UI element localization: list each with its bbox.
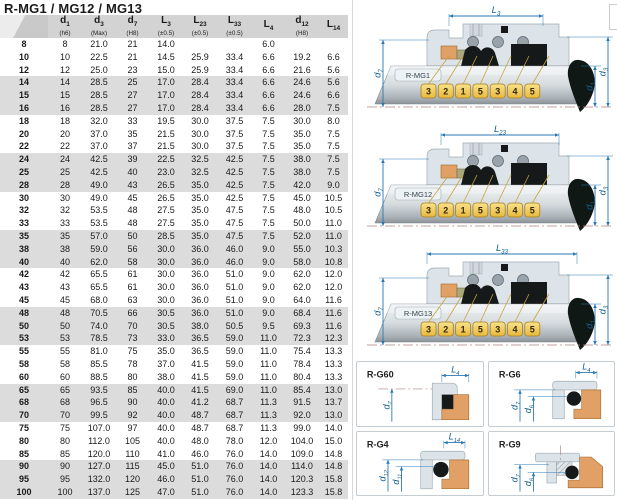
cell: 48 <box>116 204 149 217</box>
table-row: 606088.58038.041.559.011.080.413.3 <box>0 371 348 384</box>
cell: 11.0 <box>252 371 285 384</box>
cell: 42.5 <box>82 153 116 166</box>
table-row: 161628.52717.028.433.46.628.07.5 <box>0 102 348 115</box>
cell: 12.3 <box>319 332 348 345</box>
callout-number: 4 <box>512 87 517 97</box>
cell: 7.5 <box>319 102 348 115</box>
cell: 107.0 <box>82 422 116 435</box>
cell: 35.0 <box>183 230 217 243</box>
table-row: 424265.56130.036.051.09.062.012.0 <box>0 268 348 281</box>
cell: 78.5 <box>82 332 116 345</box>
cell: 22.5 <box>82 51 116 64</box>
cell: 35.0 <box>285 128 319 141</box>
cell: 47.5 <box>217 230 252 243</box>
page-frame-notch <box>609 4 617 30</box>
cell: 68.0 <box>82 294 116 307</box>
row-label: 32 <box>0 204 48 217</box>
cell: 38.0 <box>149 371 183 384</box>
cell: 45 <box>116 192 149 205</box>
row-label: 22 <box>0 140 48 153</box>
cell: 26.5 <box>149 179 183 192</box>
cell: 28.5 <box>82 76 116 89</box>
cell: 15.8 <box>319 486 348 499</box>
cell: 7.5 <box>252 115 285 128</box>
row-label: 12 <box>0 64 48 77</box>
cell: 35.0 <box>183 192 217 205</box>
table-row: 333353.54827.535.047.57.550.011.0 <box>0 217 348 230</box>
cell: 120.0 <box>82 448 116 461</box>
cell: 32.5 <box>183 166 217 179</box>
cell: 28.4 <box>183 89 217 102</box>
row-label: 60 <box>0 371 48 384</box>
table-row: 282849.04326.535.042.57.542.09.0 <box>0 179 348 192</box>
cell: 50 <box>116 230 149 243</box>
cell: 33.4 <box>217 76 252 89</box>
row-label: 90 <box>0 460 48 473</box>
cell: 49.0 <box>82 179 116 192</box>
cell: 50 <box>48 320 82 333</box>
cell: 32 <box>48 204 82 217</box>
cell: 48 <box>116 217 149 230</box>
cell: 43 <box>48 281 82 294</box>
cell: 17.0 <box>149 76 183 89</box>
cell: 65.5 <box>82 281 116 294</box>
cell: 45.0 <box>285 192 319 205</box>
cell: 88.5 <box>82 371 116 384</box>
gland-panel-r-g9: R-G9 d7 d6 <box>488 431 616 497</box>
cell: 14.0 <box>252 473 285 486</box>
panel-label: R-G4 <box>367 439 390 449</box>
cell: 39 <box>116 153 149 166</box>
cell: 30.0 <box>285 115 319 128</box>
cell: 97 <box>116 422 149 435</box>
o-ring <box>566 391 580 405</box>
row-label: 14 <box>0 76 48 89</box>
callout-number: 3 <box>426 325 431 335</box>
cell: 7.5 <box>252 179 285 192</box>
cell: 46.0 <box>217 256 252 269</box>
callout-number: 3 <box>495 325 500 335</box>
cell: 58 <box>116 256 149 269</box>
cell: 46.0 <box>183 448 217 461</box>
cell: 132.0 <box>82 473 116 486</box>
cell: 12.0 <box>252 435 285 448</box>
cell: 21.6 <box>285 64 319 77</box>
cell: 123.3 <box>285 486 319 499</box>
cell: 35.0 <box>149 345 183 358</box>
cell: 30.0 <box>183 140 217 153</box>
row-label: 95 <box>0 473 48 486</box>
cell: 6.6 <box>252 102 285 115</box>
cell: 81.0 <box>82 345 116 358</box>
cell: 38 <box>48 243 82 256</box>
col-header <box>0 15 48 38</box>
catalog-page: R-MG1 / MG12 / MG13 d1(h6)d3(Max)d7(H8)L… <box>0 0 617 500</box>
cell: 62.0 <box>285 281 319 294</box>
cell: 35.0 <box>285 140 319 153</box>
cell: 30.0 <box>149 281 183 294</box>
cell: 20 <box>48 128 82 141</box>
cell: 14.0 <box>252 486 285 499</box>
callout-number: 5 <box>530 325 535 335</box>
cell: 6.0 <box>252 38 285 51</box>
cell: 40.0 <box>149 422 183 435</box>
cell: 7.5 <box>252 217 285 230</box>
cell <box>183 38 217 51</box>
cell: 9.0 <box>252 307 285 320</box>
cell: 59.0 <box>217 371 252 384</box>
cell: 91.5 <box>285 396 319 409</box>
cell: 59.0 <box>217 332 252 345</box>
cell: 17.0 <box>149 89 183 102</box>
cell: 35 <box>48 230 82 243</box>
callout-number: 1 <box>461 325 466 335</box>
row-label: 35 <box>0 230 48 243</box>
cell: 42.5 <box>217 153 252 166</box>
dimension-table: d1(h6)d3(Max)d7(H8)L3(±0.5)L23(±0.5)L33(… <box>0 15 348 499</box>
cell: 80 <box>48 435 82 448</box>
dimension-label: d7 <box>373 69 386 78</box>
callout-number: 3 <box>426 206 431 216</box>
cell: 41.5 <box>183 371 217 384</box>
cell: 80 <box>116 371 149 384</box>
cell: 66 <box>116 307 149 320</box>
cell: 7.5 <box>319 140 348 153</box>
cell: 105 <box>116 435 149 448</box>
dimension-label: d7 <box>373 307 386 316</box>
cell: 11.0 <box>252 345 285 358</box>
cell: 7.5 <box>252 230 285 243</box>
dimension-label: L23 <box>494 124 507 137</box>
o-ring <box>433 461 448 476</box>
cell: 13.3 <box>319 371 348 384</box>
callout-number: 4 <box>512 206 517 216</box>
header-row: d1(h6)d3(Max)d7(H8)L3(±0.5)L23(±0.5)L33(… <box>0 15 348 38</box>
cell: 11.0 <box>319 230 348 243</box>
cell: 35.0 <box>183 217 217 230</box>
gland-section <box>552 381 596 390</box>
cell: 100 <box>48 486 82 499</box>
spring <box>493 156 504 167</box>
cell: 19.5 <box>149 115 183 128</box>
cell: 46.0 <box>217 243 252 256</box>
cell: 14.8 <box>319 460 348 473</box>
cell: 28.4 <box>183 102 217 115</box>
cell: 69.3 <box>285 320 319 333</box>
col-header: d12(H8) <box>285 15 319 38</box>
table-row: 656593.58540.041.569.011.085.413.0 <box>0 384 348 397</box>
cell: 35 <box>116 128 149 141</box>
cell: 10.3 <box>319 243 348 256</box>
cell: 10.5 <box>319 204 348 217</box>
cell: 68.7 <box>217 422 252 435</box>
cell: 30.0 <box>149 294 183 307</box>
cell: 23.0 <box>149 166 183 179</box>
table-row: 121225.02315.025.933.46.621.65.6 <box>0 64 348 77</box>
callout-number: 3 <box>495 206 500 216</box>
row-label: 16 <box>0 102 48 115</box>
cell: 7.5 <box>252 128 285 141</box>
row-label: 25 <box>0 166 48 179</box>
cell: 76.0 <box>217 448 252 461</box>
spring <box>468 156 479 167</box>
cell: 59.0 <box>217 345 252 358</box>
cell: 70.5 <box>82 307 116 320</box>
callout-number: 1 <box>461 87 466 97</box>
panel-label: R-G6 <box>498 369 520 379</box>
cell: 14.0 <box>252 448 285 461</box>
col-header: L3(±0.5) <box>149 15 183 38</box>
table-row: 242442.53922.532.542.57.538.07.5 <box>0 153 348 166</box>
spring <box>468 275 479 286</box>
cell: 11.0 <box>252 384 285 397</box>
cell: 17.0 <box>149 102 183 115</box>
callout-number: 2 <box>443 325 448 335</box>
cell: 25 <box>116 76 149 89</box>
col-header: L33(±0.5) <box>217 15 252 38</box>
orange-seal-face <box>441 284 457 297</box>
set-screw <box>501 264 508 271</box>
col-header: d7(H8) <box>116 15 149 38</box>
callout-number: 3 <box>495 87 500 97</box>
cell: 90 <box>116 396 149 409</box>
cell: 7.5 <box>252 140 285 153</box>
cell: 9.0 <box>252 256 285 269</box>
cell: 35.0 <box>183 204 217 217</box>
cell: 68.7 <box>217 396 252 409</box>
cell: 85.5 <box>82 358 116 371</box>
row-label: 45 <box>0 294 48 307</box>
set-screw <box>501 26 508 33</box>
gland-section <box>535 453 579 462</box>
cell: 72.3 <box>285 332 319 345</box>
table-row: 202037.03521.530.037.57.535.07.5 <box>0 128 348 141</box>
cell: 53.5 <box>82 217 116 230</box>
gland-panel-r-g60: R-G60 L4 d7 <box>356 361 484 427</box>
cell: 22.5 <box>149 153 183 166</box>
cell: 40.0 <box>149 396 183 409</box>
row-label: 42 <box>0 268 48 281</box>
cell: 51.0 <box>217 307 252 320</box>
cell: 48.0 <box>183 435 217 448</box>
diagram-label: R-MG1 <box>406 71 430 80</box>
cell: 24.6 <box>285 76 319 89</box>
cell: 38.0 <box>285 166 319 179</box>
table-row: 8080112.010540.048.078.012.0104.015.0 <box>0 435 348 448</box>
row-label: 28 <box>0 179 48 192</box>
cell: 6.6 <box>252 89 285 102</box>
cell: 28.5 <box>82 89 116 102</box>
black-seal <box>442 395 454 409</box>
cell: 7.5 <box>252 204 285 217</box>
cell: 28.5 <box>82 102 116 115</box>
cell: 75.4 <box>285 345 319 358</box>
table-row: 686896.59040.041.268.711.391.513.7 <box>0 396 348 409</box>
cell: 51.0 <box>183 460 217 473</box>
callout-number: 1 <box>461 206 466 216</box>
table-row: 9595132.012046.051.076.014.0120.315.8 <box>0 473 348 486</box>
row-label: 15 <box>0 89 48 102</box>
callout-number: 5 <box>478 325 483 335</box>
col-header: d3(Max) <box>82 15 116 38</box>
cell: 30.0 <box>149 268 183 281</box>
table-row: 585885.57837.041.559.011.078.413.3 <box>0 358 348 371</box>
panel-label: R-G9 <box>498 439 520 449</box>
cell: 23 <box>116 64 149 77</box>
cell: 70 <box>48 409 82 422</box>
cell: 21.0 <box>82 38 116 51</box>
row-label: 40 <box>0 256 48 269</box>
cell: 63 <box>116 294 149 307</box>
cell: 36.0 <box>183 268 217 281</box>
row-label: 8 <box>0 38 48 51</box>
row-label: 70 <box>0 409 48 422</box>
cell: 11.3 <box>252 409 285 422</box>
callout-number: 4 <box>512 325 517 335</box>
cell: 112.0 <box>82 435 116 448</box>
row-label: 85 <box>0 448 48 461</box>
cell: 48.0 <box>285 204 319 217</box>
cell: 24 <box>48 153 82 166</box>
cell: 30.0 <box>149 243 183 256</box>
table-row: 434365.56130.036.051.09.062.012.0 <box>0 281 348 294</box>
black-seat <box>511 44 547 66</box>
table-row: 100100137.012547.051.076.014.0123.315.8 <box>0 486 348 499</box>
table-row: 454568.06330.036.051.09.064.011.6 <box>0 294 348 307</box>
o-ring <box>565 465 578 478</box>
cell: 40 <box>116 166 149 179</box>
cell: 9.0 <box>252 294 285 307</box>
cell: 58 <box>48 358 82 371</box>
cell: 14.5 <box>149 51 183 64</box>
row-label: 65 <box>0 384 48 397</box>
table-row: 151528.52717.028.433.46.624.66.6 <box>0 89 348 102</box>
table-row: 7575107.09740.048.768.711.399.014.0 <box>0 422 348 435</box>
cell: 69.0 <box>217 384 252 397</box>
cell: 90 <box>48 460 82 473</box>
row-label: 75 <box>0 422 48 435</box>
cell: 74.0 <box>82 320 116 333</box>
cell: 37 <box>116 140 149 153</box>
cell: 40 <box>48 256 82 269</box>
set-screw <box>501 145 508 152</box>
cell: 52.0 <box>285 230 319 243</box>
cell: 21 <box>116 38 149 51</box>
table-row: 8821.02114.06.0 <box>0 38 348 51</box>
seal-diagram-r-mg12: R-MG12 3 2 1 5 3 4 5L23d7d1d3 <box>353 123 617 241</box>
callout-number: 2 <box>443 206 448 216</box>
table-row: 303049.04526.535.042.57.545.010.5 <box>0 192 348 205</box>
cell: 25.0 <box>82 64 116 77</box>
seal-diagram-r-mg1: R-MG1 3 2 1 5 3 4 5L3d7d1d3 <box>353 4 617 122</box>
cell: 11.6 <box>319 320 348 333</box>
cell: 11.3 <box>252 422 285 435</box>
cell: 80.4 <box>285 371 319 384</box>
cell: 70 <box>116 320 149 333</box>
cell: 28 <box>48 179 82 192</box>
cell: 7.5 <box>319 166 348 179</box>
col-header: d1(h6) <box>48 15 82 38</box>
dimension-label: L3 <box>492 5 501 18</box>
cell: 13.3 <box>319 345 348 358</box>
cell <box>285 38 319 51</box>
cell: 51.0 <box>183 473 217 486</box>
cell: 114.0 <box>285 460 319 473</box>
cell: 27 <box>116 89 149 102</box>
seal-diagram-r-mg13: R-MG13 3 2 1 5 3 4 5L33d7d1d3 <box>353 242 617 360</box>
cell: 47.5 <box>217 217 252 230</box>
spring <box>468 37 479 48</box>
cell: 16 <box>48 102 82 115</box>
cell: 125 <box>116 486 149 499</box>
callout-number: 5 <box>478 87 483 97</box>
cell: 9.0 <box>252 268 285 281</box>
table-row: 9090127.011545.051.076.014.0114.014.8 <box>0 460 348 473</box>
table-row: 8585120.011041.046.076.014.0109.014.8 <box>0 448 348 461</box>
cell: 18 <box>48 115 82 128</box>
table-row: 101022.52114.525.933.46.619.26.6 <box>0 51 348 64</box>
row-label: 58 <box>0 358 48 371</box>
cell: 25.9 <box>183 51 217 64</box>
cell: 62.0 <box>285 268 319 281</box>
cell: 13.7 <box>319 396 348 409</box>
cell: 11.6 <box>319 307 348 320</box>
row-label: 30 <box>0 192 48 205</box>
table-header: d1(h6)d3(Max)d7(H8)L3(±0.5)L23(±0.5)L33(… <box>0 15 348 38</box>
row-label: 48 <box>0 307 48 320</box>
dimension-label: L33 <box>496 243 509 256</box>
cell: 55.0 <box>285 243 319 256</box>
gland-section <box>421 451 465 460</box>
cell: 51.0 <box>217 281 252 294</box>
cell: 36.0 <box>183 243 217 256</box>
orange-seal-face <box>441 46 457 59</box>
table-row: 707099.59240.048.768.711.392.013.0 <box>0 409 348 422</box>
cell: 21.5 <box>149 140 183 153</box>
cell: 109.0 <box>285 448 319 461</box>
cell: 42.5 <box>217 179 252 192</box>
cell: 9.0 <box>319 179 348 192</box>
cell <box>319 38 348 51</box>
row-label: 10 <box>0 51 48 64</box>
cell: 62.0 <box>82 256 116 269</box>
cell: 6.6 <box>252 76 285 89</box>
cell: 26.5 <box>149 192 183 205</box>
cell: 120.3 <box>285 473 319 486</box>
cell: 53 <box>48 332 82 345</box>
table-row: 222237.03721.530.037.57.535.07.5 <box>0 140 348 153</box>
table-row: 181832.03319.530.037.57.530.08.0 <box>0 115 348 128</box>
cell: 11.3 <box>252 396 285 409</box>
cell: 15 <box>48 89 82 102</box>
cell: 61 <box>116 281 149 294</box>
cell: 96.5 <box>82 396 116 409</box>
table-row: 141428.52517.028.433.46.624.65.6 <box>0 76 348 89</box>
cell: 48.7 <box>183 409 217 422</box>
cell: 12.0 <box>319 268 348 281</box>
cell: 7.5 <box>252 166 285 179</box>
diagram-area: R-MG1 3 2 1 5 3 4 5L3d7d1d3 R-MG12 3 2 1 <box>352 0 617 500</box>
cell: 35.0 <box>183 179 217 192</box>
cell: 6.6 <box>252 64 285 77</box>
cell: 50.5 <box>217 320 252 333</box>
cell: 37.5 <box>217 115 252 128</box>
cell: 51.0 <box>217 294 252 307</box>
callout-number: 5 <box>530 87 535 97</box>
table-row: 535378.57333.036.559.011.072.312.3 <box>0 332 348 345</box>
cell: 38.0 <box>285 153 319 166</box>
cell: 11.0 <box>319 217 348 230</box>
